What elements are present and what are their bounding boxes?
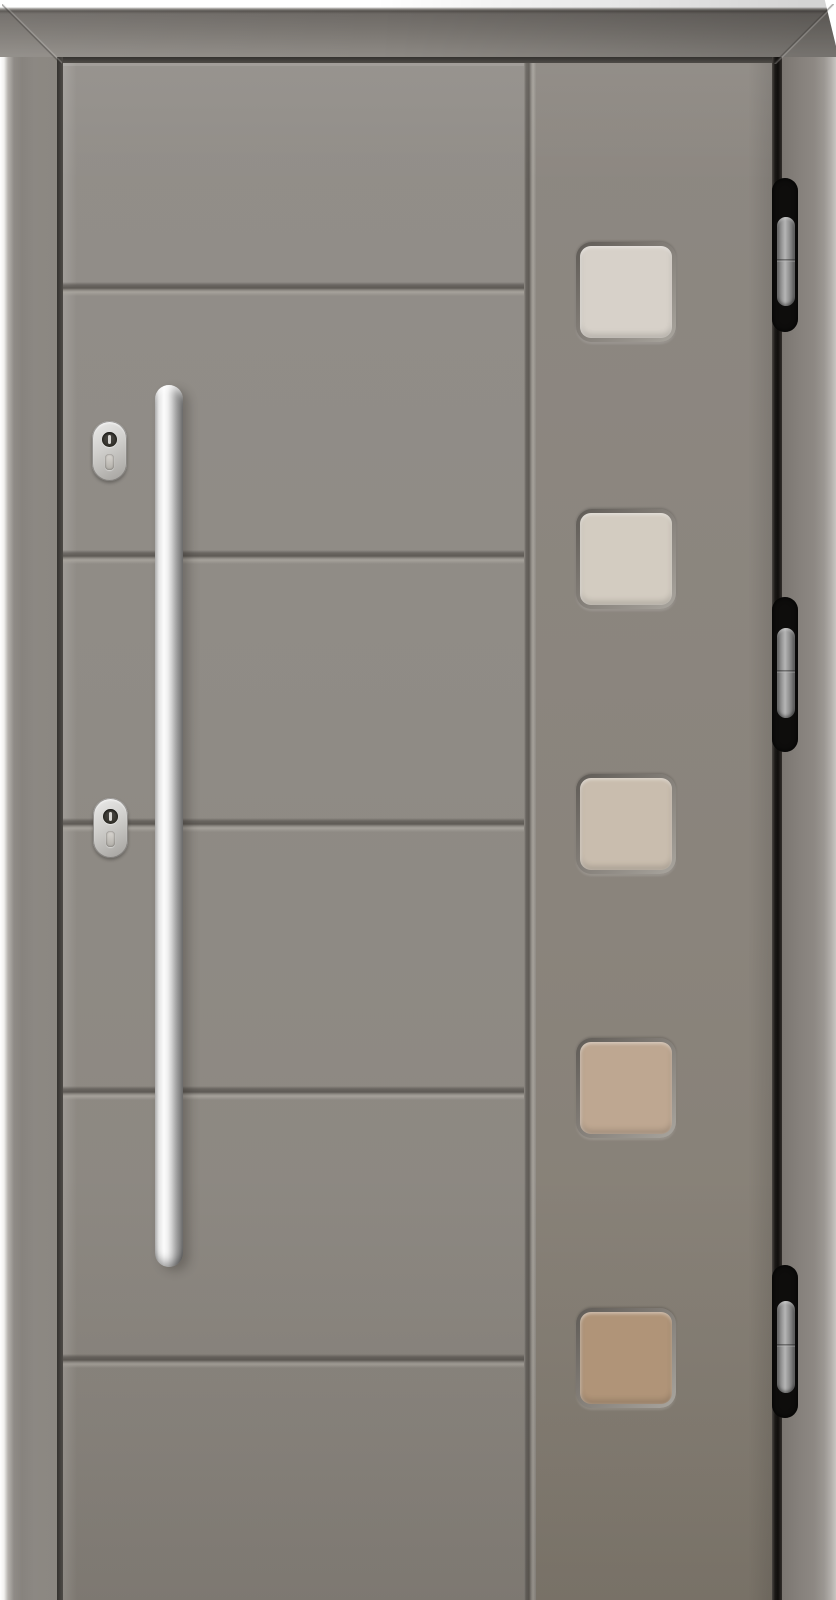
panel-groove-3 bbox=[63, 818, 524, 832]
door-hinge-middle bbox=[772, 597, 798, 752]
glass-pane-recess-5 bbox=[576, 1308, 676, 1408]
glass-pane-1 bbox=[580, 246, 672, 338]
panel-groove-4 bbox=[63, 1086, 524, 1100]
panel-groove-1 bbox=[63, 282, 524, 296]
glass-pane-3 bbox=[580, 778, 672, 870]
keyhole-icon bbox=[102, 432, 117, 447]
panel-vertical-groove bbox=[524, 63, 536, 1600]
door-stile-right bbox=[536, 63, 772, 1600]
panel-groove-2 bbox=[63, 550, 524, 564]
lock-cylinder-upper bbox=[92, 421, 127, 481]
frame-seam-left bbox=[57, 57, 63, 1600]
cylinder-slot bbox=[106, 831, 115, 847]
entrance-door-photo bbox=[0, 0, 836, 1600]
door-hinge-top bbox=[772, 178, 798, 332]
lock-cylinder-lower bbox=[93, 798, 128, 858]
frame-seam-top bbox=[57, 57, 782, 63]
glass-pane-recess-3 bbox=[576, 774, 676, 874]
glass-pane-recess-4 bbox=[576, 1038, 676, 1138]
cylinder-slot bbox=[105, 454, 114, 470]
glass-pane-4 bbox=[580, 1042, 672, 1134]
glass-pane-recess-1 bbox=[576, 242, 676, 342]
glass-pane-5 bbox=[580, 1312, 672, 1404]
glass-pane-2 bbox=[580, 513, 672, 605]
pull-handle-bar bbox=[155, 385, 183, 1267]
door-frame-top bbox=[0, 0, 836, 57]
door-panel-left bbox=[63, 63, 524, 1600]
door-hinge-bottom bbox=[772, 1265, 798, 1418]
hinge-pin bbox=[777, 1301, 795, 1393]
door-frame-left bbox=[0, 0, 57, 1600]
hinge-pin bbox=[777, 628, 795, 718]
glass-pane-recess-2 bbox=[576, 509, 676, 609]
hinge-pin bbox=[777, 217, 795, 306]
keyhole-icon bbox=[103, 809, 118, 824]
panel-groove-5 bbox=[63, 1354, 524, 1368]
